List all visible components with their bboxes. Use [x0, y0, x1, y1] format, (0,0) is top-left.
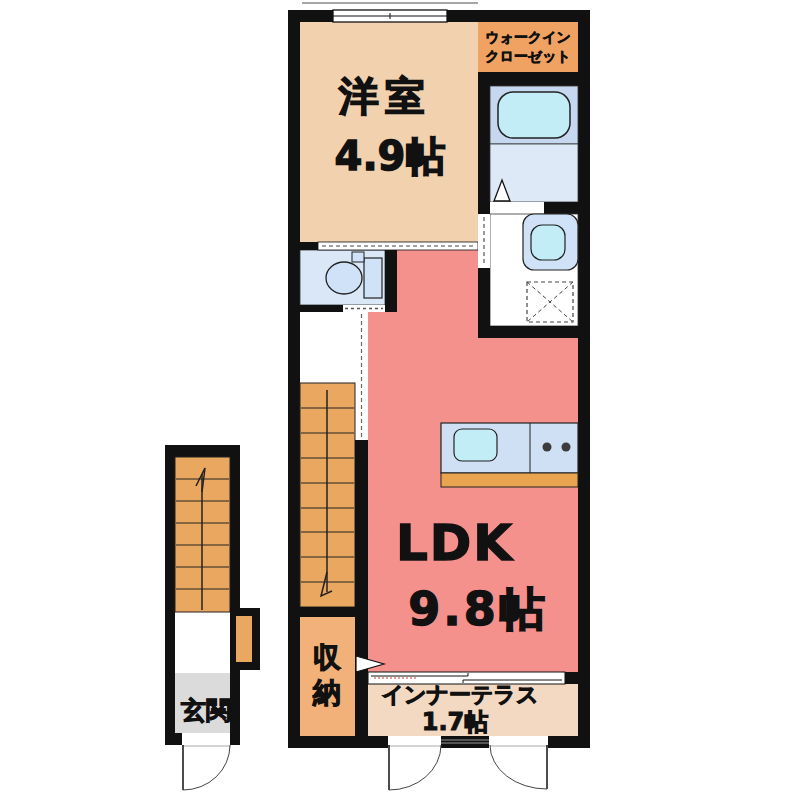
wall-segment: [478, 72, 490, 214]
kitchen-sink: [454, 429, 497, 461]
bathtub: [498, 92, 570, 138]
door-swing-arc: [490, 745, 547, 789]
stove-burner-icon: [562, 443, 571, 452]
wall-segment: [478, 72, 578, 86]
wall-segment: [478, 326, 578, 338]
floor-plan-drawing: 洋室 4.9帖 ウォークイン クローゼット LDK 9.8帖 インナーテラス 1…: [0, 0, 800, 800]
ldk-size: 9.8帖: [408, 582, 548, 636]
kitchen-counter-edge: [441, 473, 578, 487]
wall-segment: [478, 268, 490, 326]
western-room-size: 4.9帖: [335, 133, 446, 179]
entrance-annex: [165, 445, 260, 790]
top-window: [333, 10, 447, 22]
staircase-entrance: [175, 457, 230, 612]
toilet-tank: [364, 258, 382, 298]
stove-burner-icon: [543, 443, 552, 452]
walk-in-closet-label-line1: ウォークイン: [485, 29, 571, 45]
storage-label-char2: 納: [312, 676, 341, 709]
washroom: [478, 214, 578, 338]
kitchen-counter: [441, 423, 578, 487]
staircase-upper: [300, 383, 355, 617]
door-swing-arc: [183, 745, 230, 790]
door-swing-arc: [389, 745, 441, 790]
door-opening: [182, 733, 230, 745]
wall-segment: [565, 672, 578, 684]
inner-terrace-size: 1.7帖: [422, 708, 489, 736]
meter-box: [236, 616, 252, 662]
bathroom: [478, 72, 578, 214]
floor-plan: 洋室 4.9帖 ウォークイン クローゼット LDK 9.8帖 インナーテラス 1…: [0, 0, 800, 800]
sliding-door-track: [318, 242, 478, 250]
entrance-door: [182, 733, 230, 790]
toilet-control-box: [352, 252, 364, 262]
wall-segment: [355, 440, 368, 736]
vanity-sink-bowl: [531, 225, 565, 260]
wall-segment: [385, 250, 397, 312]
bathroom-door-opening: [490, 202, 544, 214]
toilet-room: [300, 250, 397, 312]
western-room-sliding-partition: [300, 242, 478, 250]
entrance-label: 玄関: [180, 696, 231, 725]
toilet-bowl: [326, 262, 362, 294]
wall-segment: [300, 242, 318, 250]
ldk-label: LDK: [396, 514, 514, 572]
wall-segment: [300, 607, 355, 617]
storage-label-char1: 収: [313, 641, 341, 674]
walk-in-closet-label-line2: クローゼット: [485, 48, 571, 64]
western-room-label: 洋室: [338, 73, 431, 119]
western-room-floor: [300, 22, 478, 242]
inner-terrace-label: インナーテラス: [381, 682, 538, 707]
